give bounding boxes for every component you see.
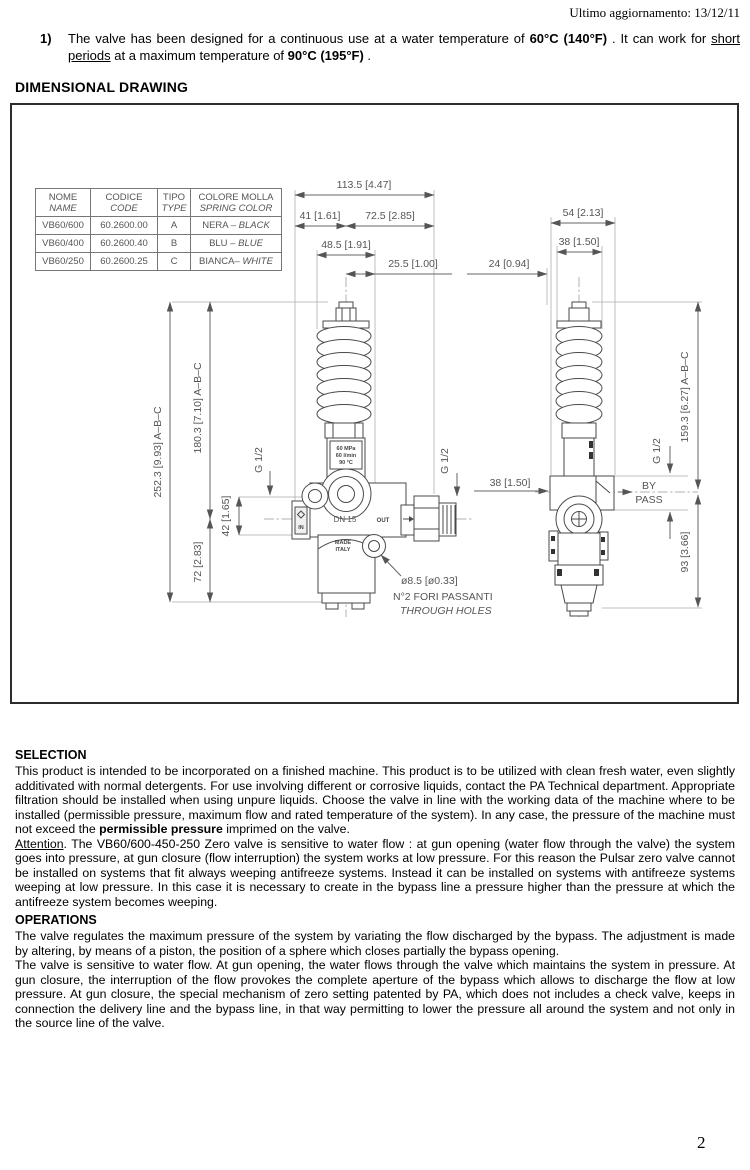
note-number: 1)	[40, 31, 68, 64]
dimensional-drawing-title: DIMENSIONAL DRAWING	[15, 79, 188, 95]
header-code: CODICECODE	[91, 189, 158, 217]
dim-38-top-label: 38 [1.50]	[559, 236, 600, 248]
cell-code: 60.2600.25	[91, 253, 158, 271]
bypass-label-line2: PASS	[635, 494, 662, 506]
cell-spring-color: BLU – BLUE	[191, 235, 282, 253]
side-valve-body	[549, 302, 614, 616]
dim-72-label: 72 [2.83]	[192, 541, 204, 582]
hole-diameter-label: ø8.5 [ø0.33]	[401, 575, 458, 587]
dimensional-drawing-frame: 113.5 [4.47] 41 [1.61] 72.5 [2.85] 48.5 …	[10, 103, 739, 704]
dim-25-5-label: 25.5 [1.00]	[388, 258, 438, 270]
in-label: IN	[298, 525, 304, 531]
temp-bold-2: 90°C (195°F)	[288, 48, 364, 63]
cell-name: VB60/600	[36, 217, 91, 235]
italy-label: ITALY	[336, 547, 351, 553]
selection-paragraph: This product is intended to be incorpora…	[15, 764, 735, 837]
dim-41-label: 41 [1.61]	[300, 210, 341, 222]
hex-nut	[414, 496, 439, 541]
cell-type: C	[158, 253, 191, 271]
spring-side	[556, 327, 602, 424]
attention-paragraph: Attention. The VB60/600-450-250 Zero val…	[15, 837, 735, 910]
side-view: 54 [2.13] 38 [1.50] 24 [0.94] 38 [1.50] …	[467, 207, 702, 617]
document-page: Ultimo aggiornamento: 13/12/11 1) The va…	[0, 0, 750, 1170]
cell-spring-color: NERA – BLACK	[191, 217, 282, 235]
table-row: VB60/600 60.2600.00 A NERA – BLACK	[36, 217, 282, 235]
operations-section: OPERATIONS The valve regulates the maxim…	[15, 913, 735, 1031]
dim-93-label: 93 [3.66]	[679, 531, 691, 572]
page-number: 2	[697, 1133, 706, 1153]
permissible-pressure-bold: permissible pressure	[99, 822, 223, 836]
table-row: VB60/400 60.2600.40 B BLU – BLUE	[36, 235, 282, 253]
cell-type: B	[158, 235, 191, 253]
header-name: NOMENAME	[36, 189, 91, 217]
selection-heading: SELECTION	[15, 748, 735, 762]
dim-113-label: 113.5 [4.47]	[337, 179, 392, 191]
hole-note-italian: N°2 FORI PASSANTI	[393, 591, 493, 603]
dim-72-5-label: 72.5 [2.85]	[365, 210, 415, 222]
last-updated-text: Ultimo aggiornamento: 13/12/11	[569, 5, 740, 21]
dn15-label: DN 15	[334, 515, 357, 524]
header-spring-color: COLORE MOLLASPRING COLOR	[191, 189, 282, 217]
selection-section: SELECTION This product is intended to be…	[15, 748, 735, 909]
temp-bold-1: 60°C (140°F)	[530, 31, 607, 46]
valve-spec-table: NOMENAME CODICECODE TIPOTYPE COLORE MOLL…	[35, 188, 282, 271]
operations-heading: OPERATIONS	[15, 913, 735, 927]
note-1: 1) The valve has been designed for a con…	[40, 31, 740, 64]
cell-code: 60.2600.40	[91, 235, 158, 253]
cell-code: 60.2600.00	[91, 217, 158, 235]
cell-spring-color: BIANCA– WHITE	[191, 253, 282, 271]
plate-pressure: 60 MPa	[337, 446, 357, 452]
dim-54-label: 54 [2.13]	[563, 207, 604, 219]
hole-note-english: THROUGH HOLES	[400, 605, 492, 617]
dim-252-3-label: 252.3 [9.93] A–B–C	[152, 406, 164, 497]
dim-48-5-label: 48.5 [1.91]	[321, 239, 371, 251]
operations-paragraph-2: The valve is sensitive to water flow. At…	[15, 958, 735, 1031]
g12-side-label: G 1/2	[651, 438, 663, 464]
made-label: MADE	[335, 540, 352, 546]
operations-paragraph-1: The valve regulates the maximum pressure…	[15, 929, 735, 958]
cell-name: VB60/400	[36, 235, 91, 253]
attention-word: Attention	[15, 837, 64, 851]
plate-flow: 60 l/min	[336, 453, 357, 459]
header-type: TIPOTYPE	[158, 189, 191, 217]
note-text: The valve has been designed for a contin…	[68, 31, 740, 64]
cell-type: A	[158, 217, 191, 235]
g12-left-label: G 1/2	[253, 447, 265, 473]
dim-180-3-label: 180.3 [7.10] A–B–C	[192, 362, 204, 453]
g12-right-label: G 1/2	[439, 448, 451, 474]
plate-temp: 90 °C	[339, 460, 353, 466]
cell-name: VB60/250	[36, 253, 91, 271]
spring	[317, 327, 371, 424]
dim-159-3-label: 159.3 [6.27] A–B–C	[679, 351, 691, 442]
dim-38-left-label: 38 [1.50]	[490, 477, 531, 489]
out-label: OUT	[377, 518, 390, 524]
table-row: VB60/250 60.2600.25 C BIANCA– WHITE	[36, 253, 282, 271]
front-valve-body: 60 MPa 60 l/min 90 °C BY-PASS IN	[292, 302, 456, 609]
dim-42-label: 42 [1.65]	[220, 495, 232, 536]
dim-24-label: 24 [0.94]	[489, 258, 530, 270]
table-header-row: NOMENAME CODICECODE TIPOTYPE COLORE MOLL…	[36, 189, 282, 217]
bypass-label-line1: BY	[642, 480, 656, 492]
